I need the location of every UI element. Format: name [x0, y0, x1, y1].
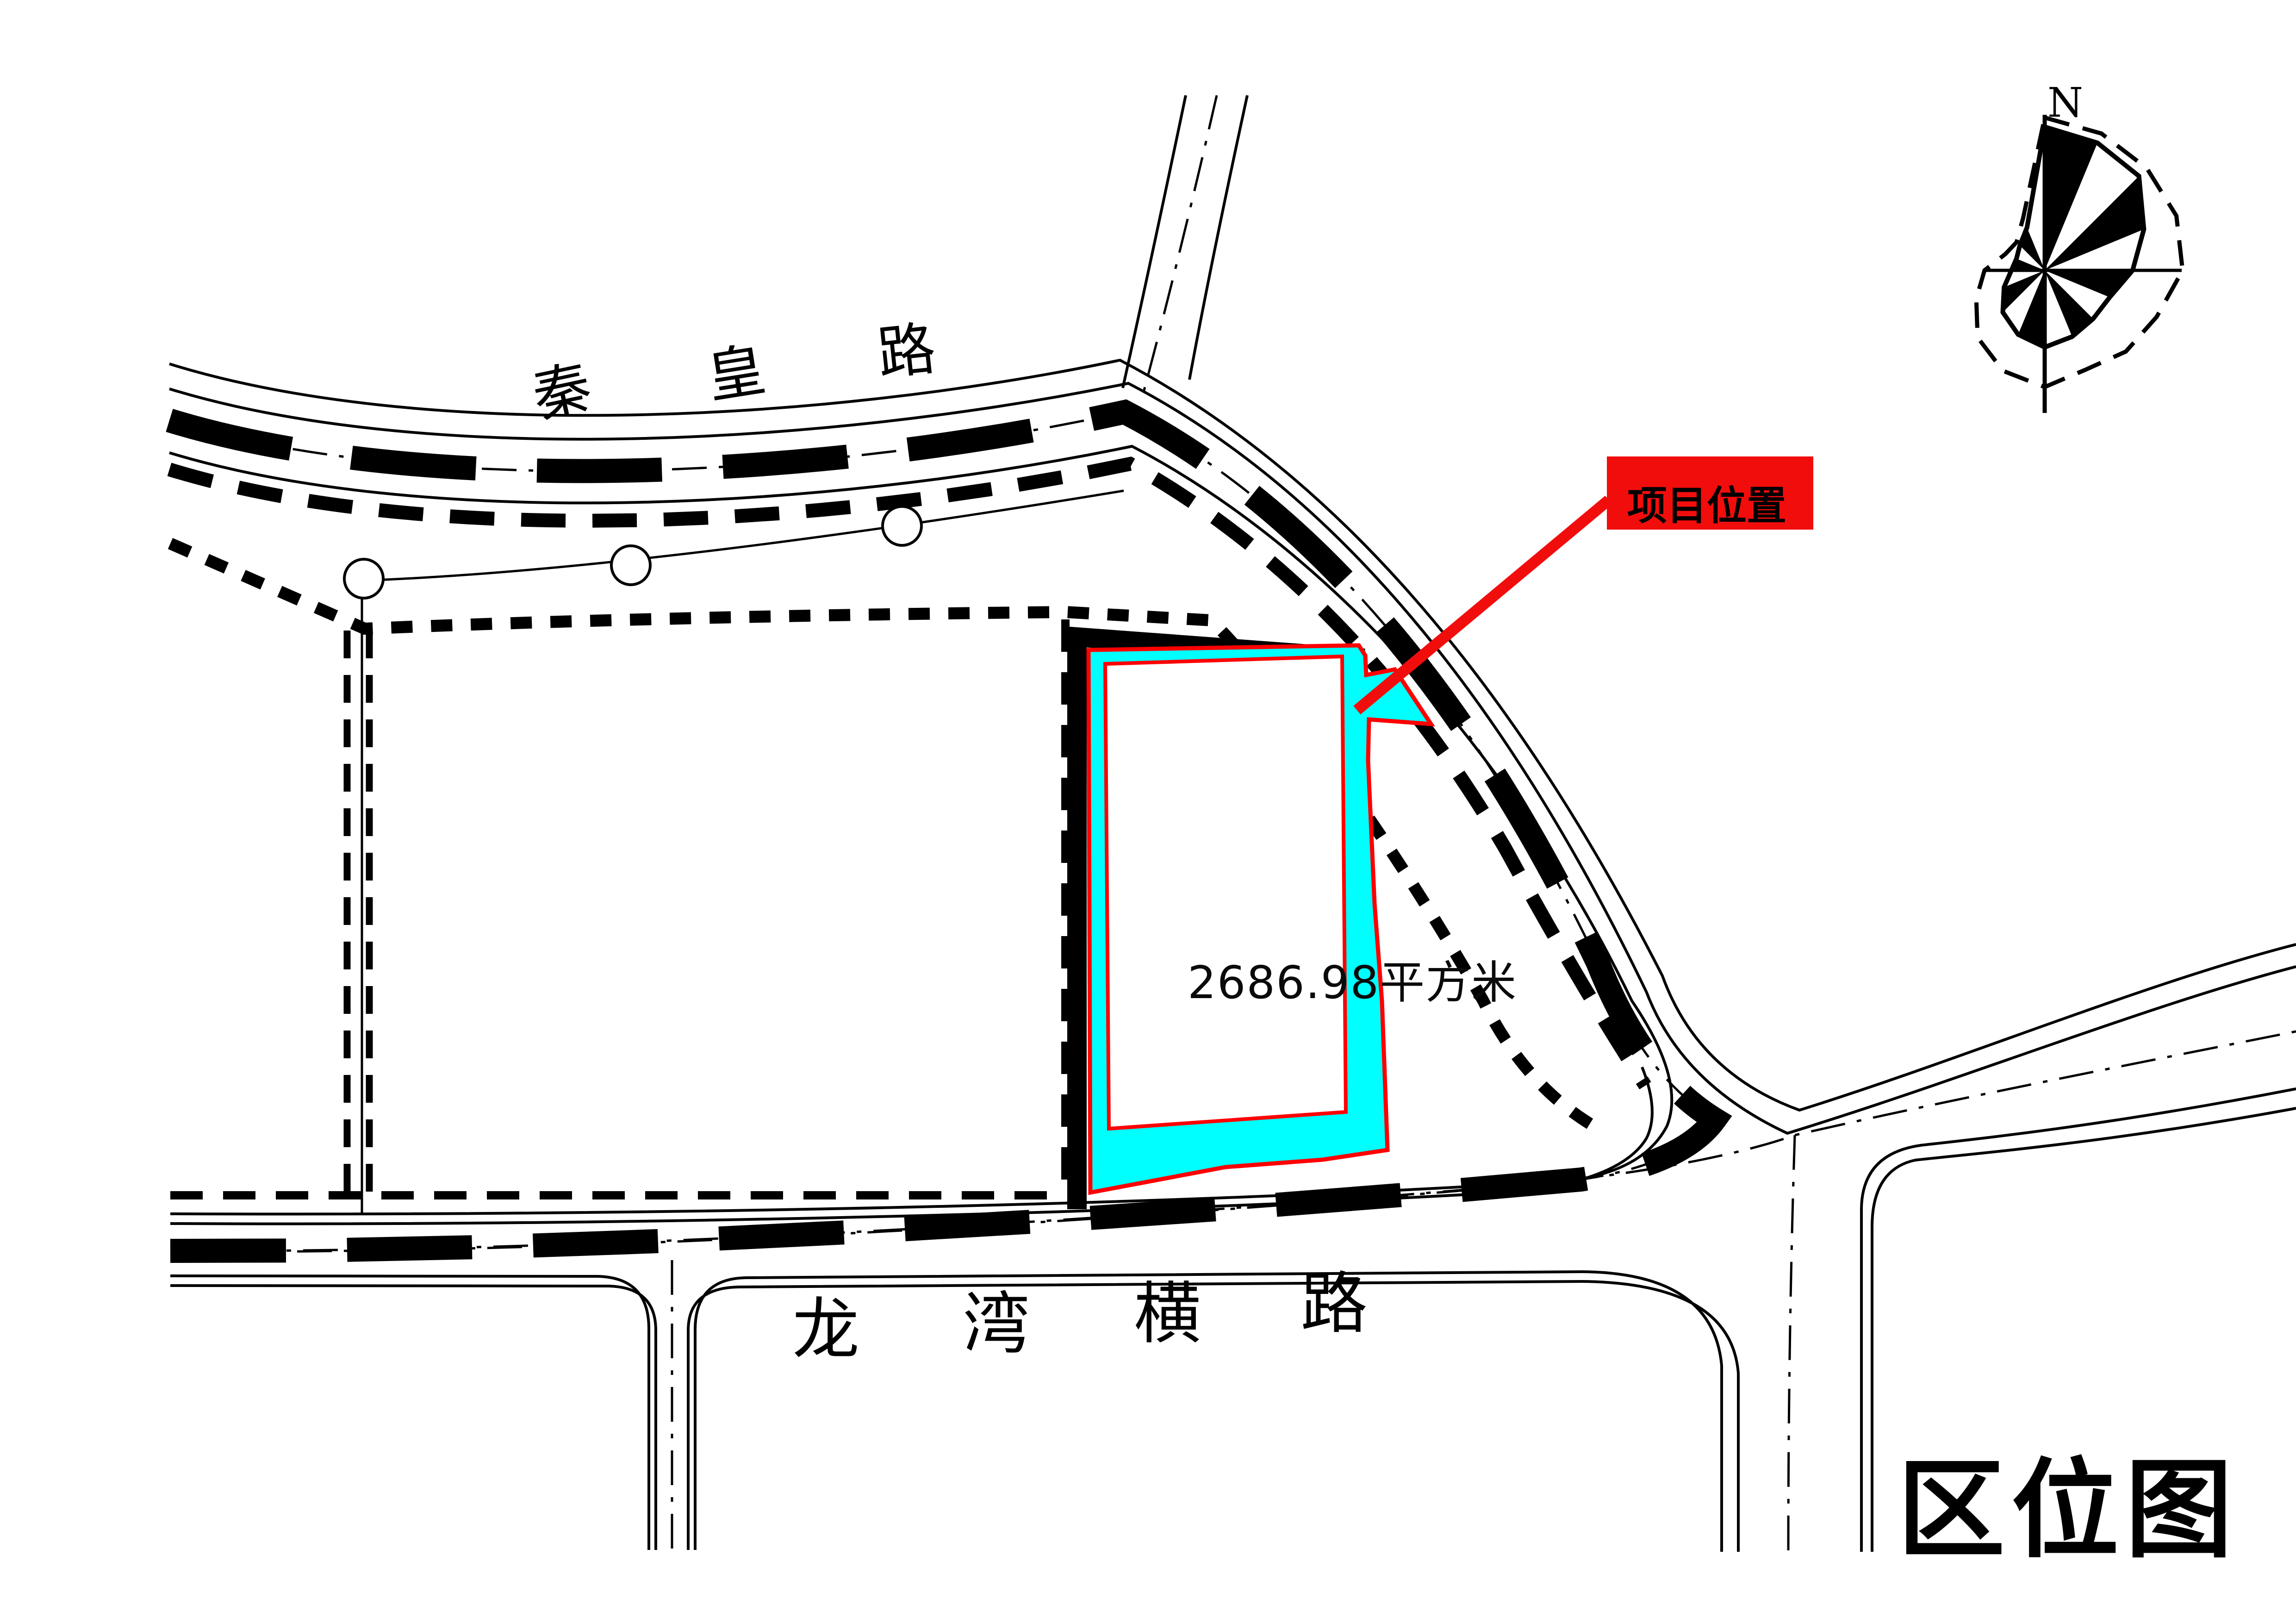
- bottom-road-south-edge-inner-west: [170, 1286, 656, 1550]
- top-road-label: 秦 皇 路: [527, 315, 939, 431]
- planning-dash-lines: [169, 412, 1715, 1251]
- north-branch-east-edge: [1189, 95, 1247, 380]
- location-map-canvas: 2686.98平方米 项目位置 秦 皇 路 龙 湾 横 路 N 区位图: [0, 0, 2296, 1624]
- tree-circle: [344, 559, 383, 598]
- wind-rose-petals: [1976, 118, 2183, 387]
- top-road-char-3: 路: [874, 315, 939, 388]
- bottom-road-char-2: 湾: [963, 1285, 1030, 1363]
- north-label: N: [2047, 79, 2083, 126]
- top-road-centerline: [169, 412, 1715, 1251]
- bottom-road-char-1: 龙: [792, 1291, 859, 1369]
- north-branch-west-edge: [1123, 95, 1186, 388]
- bottom-road-char-4: 路: [1300, 1265, 1368, 1343]
- callout-label: 项目位置: [1627, 482, 1786, 529]
- callout-leader-line: [1357, 500, 1609, 710]
- block-inner-edge-line: [169, 446, 1672, 1214]
- road-red-line-thick-dash: [169, 412, 1715, 1251]
- bottom-road-char-3: 横: [1134, 1275, 1201, 1353]
- map-title: 区位图: [1898, 1448, 2239, 1573]
- tree-line: [365, 491, 1124, 581]
- tree-circle: [611, 546, 650, 585]
- bottom-road-south-edge-outer-west: [170, 1276, 649, 1550]
- bottom-road-label: 龙 湾 横 路: [792, 1265, 1368, 1369]
- parcel-area-label: 2686.98平方米: [1188, 956, 1517, 1009]
- tree-circle: [883, 506, 921, 545]
- top-road-char-1: 秦: [527, 353, 597, 431]
- parcel-inner-plot: [1105, 656, 1346, 1129]
- wind-rose: N: [1976, 79, 2183, 413]
- top-road-char-2: 皇: [703, 336, 770, 412]
- south-road-centerline: [1788, 1135, 1795, 1552]
- bottom-road-north-edge-inner: [170, 1067, 1652, 1224]
